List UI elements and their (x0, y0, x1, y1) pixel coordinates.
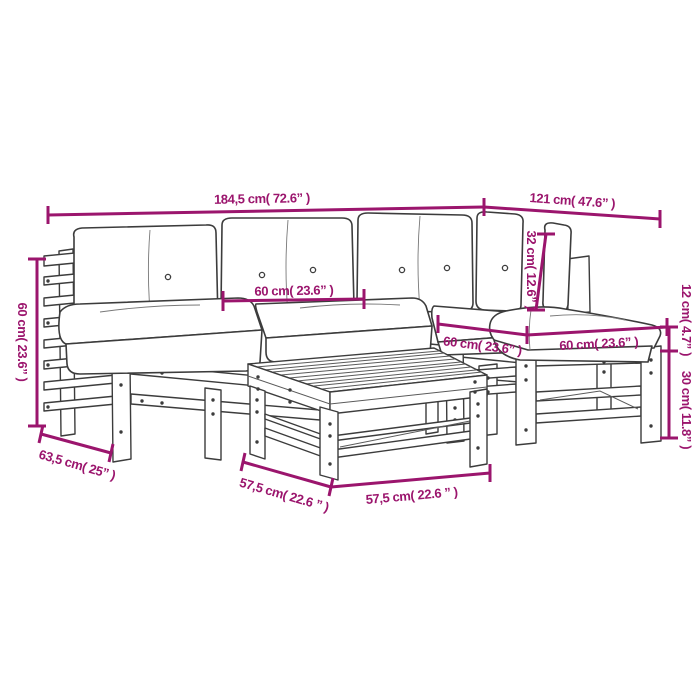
dim-table-depth: 57,5 cm( 22.6 ” ) (238, 475, 331, 515)
tuft-button (502, 265, 507, 270)
dim-cushion-height: 12 cm( 4.7” ) (679, 284, 694, 356)
dim-right-depth: 121 cm( 47.6” ) (529, 190, 616, 211)
diagram-canvas: 184,5 cm( 72.6” ) 121 cm( 47.6” ) 32 cm(… (0, 0, 700, 700)
tuft-button (259, 272, 264, 277)
dim-backrest-height: 32 cm( 12.6” ) (524, 231, 539, 310)
dim-total-width: 184,5 cm( 72.6” ) (214, 190, 310, 207)
tuft-button (310, 267, 315, 272)
dim-arm-height: 60 cm( 23.6” ) (15, 303, 30, 382)
dim-middle-seat-width: 60 cm( 23.6” ) (254, 282, 333, 298)
furniture-dimension-diagram: 184,5 cm( 72.6” ) 121 cm( 47.6” ) 32 cm(… (0, 0, 700, 700)
tuft-button (399, 267, 404, 272)
tuft-button (165, 274, 170, 279)
dim-table-width: 57,5 cm( 22.6 ” ) (365, 484, 458, 507)
tuft-button (444, 265, 449, 270)
dim-frame-height: 30 cm( 11.8” ) (679, 371, 694, 449)
